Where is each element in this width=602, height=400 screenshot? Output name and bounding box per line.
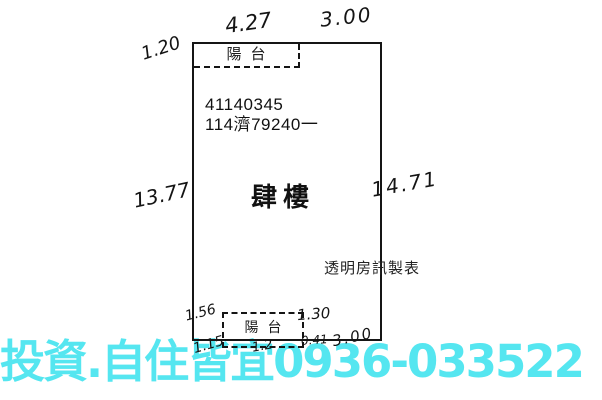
case-number: 114濟79240一 <box>205 115 318 135</box>
measurement-bottom-balcony-right-depth: 1.30 <box>296 304 331 324</box>
floor-plan-canvas: 投資.自住皆宜0936-033522 陽台 陽台 41140345 114濟79… <box>0 0 602 400</box>
measurement-top-left-depth: 1.20 <box>139 32 184 64</box>
measurement-bottom-offset: 0.41 <box>301 332 329 348</box>
measurement-left-side: 13.77 <box>131 177 192 212</box>
measurement-top-balcony-width: 4.27 <box>224 8 274 38</box>
registration-block: 41140345 114濟79240一 <box>205 95 318 135</box>
bottom-balcony-label: 陽台 <box>236 314 291 340</box>
measurement-top-right-width: 3.00 <box>319 2 374 31</box>
top-balcony-label: 陽台 <box>217 44 274 66</box>
top-balcony-box: 陽台 <box>194 44 300 68</box>
floor-title: 肆樓 <box>251 177 315 214</box>
document-number: 41140345 <box>205 95 318 115</box>
source-credit: 透明房訊製表 <box>324 257 420 278</box>
